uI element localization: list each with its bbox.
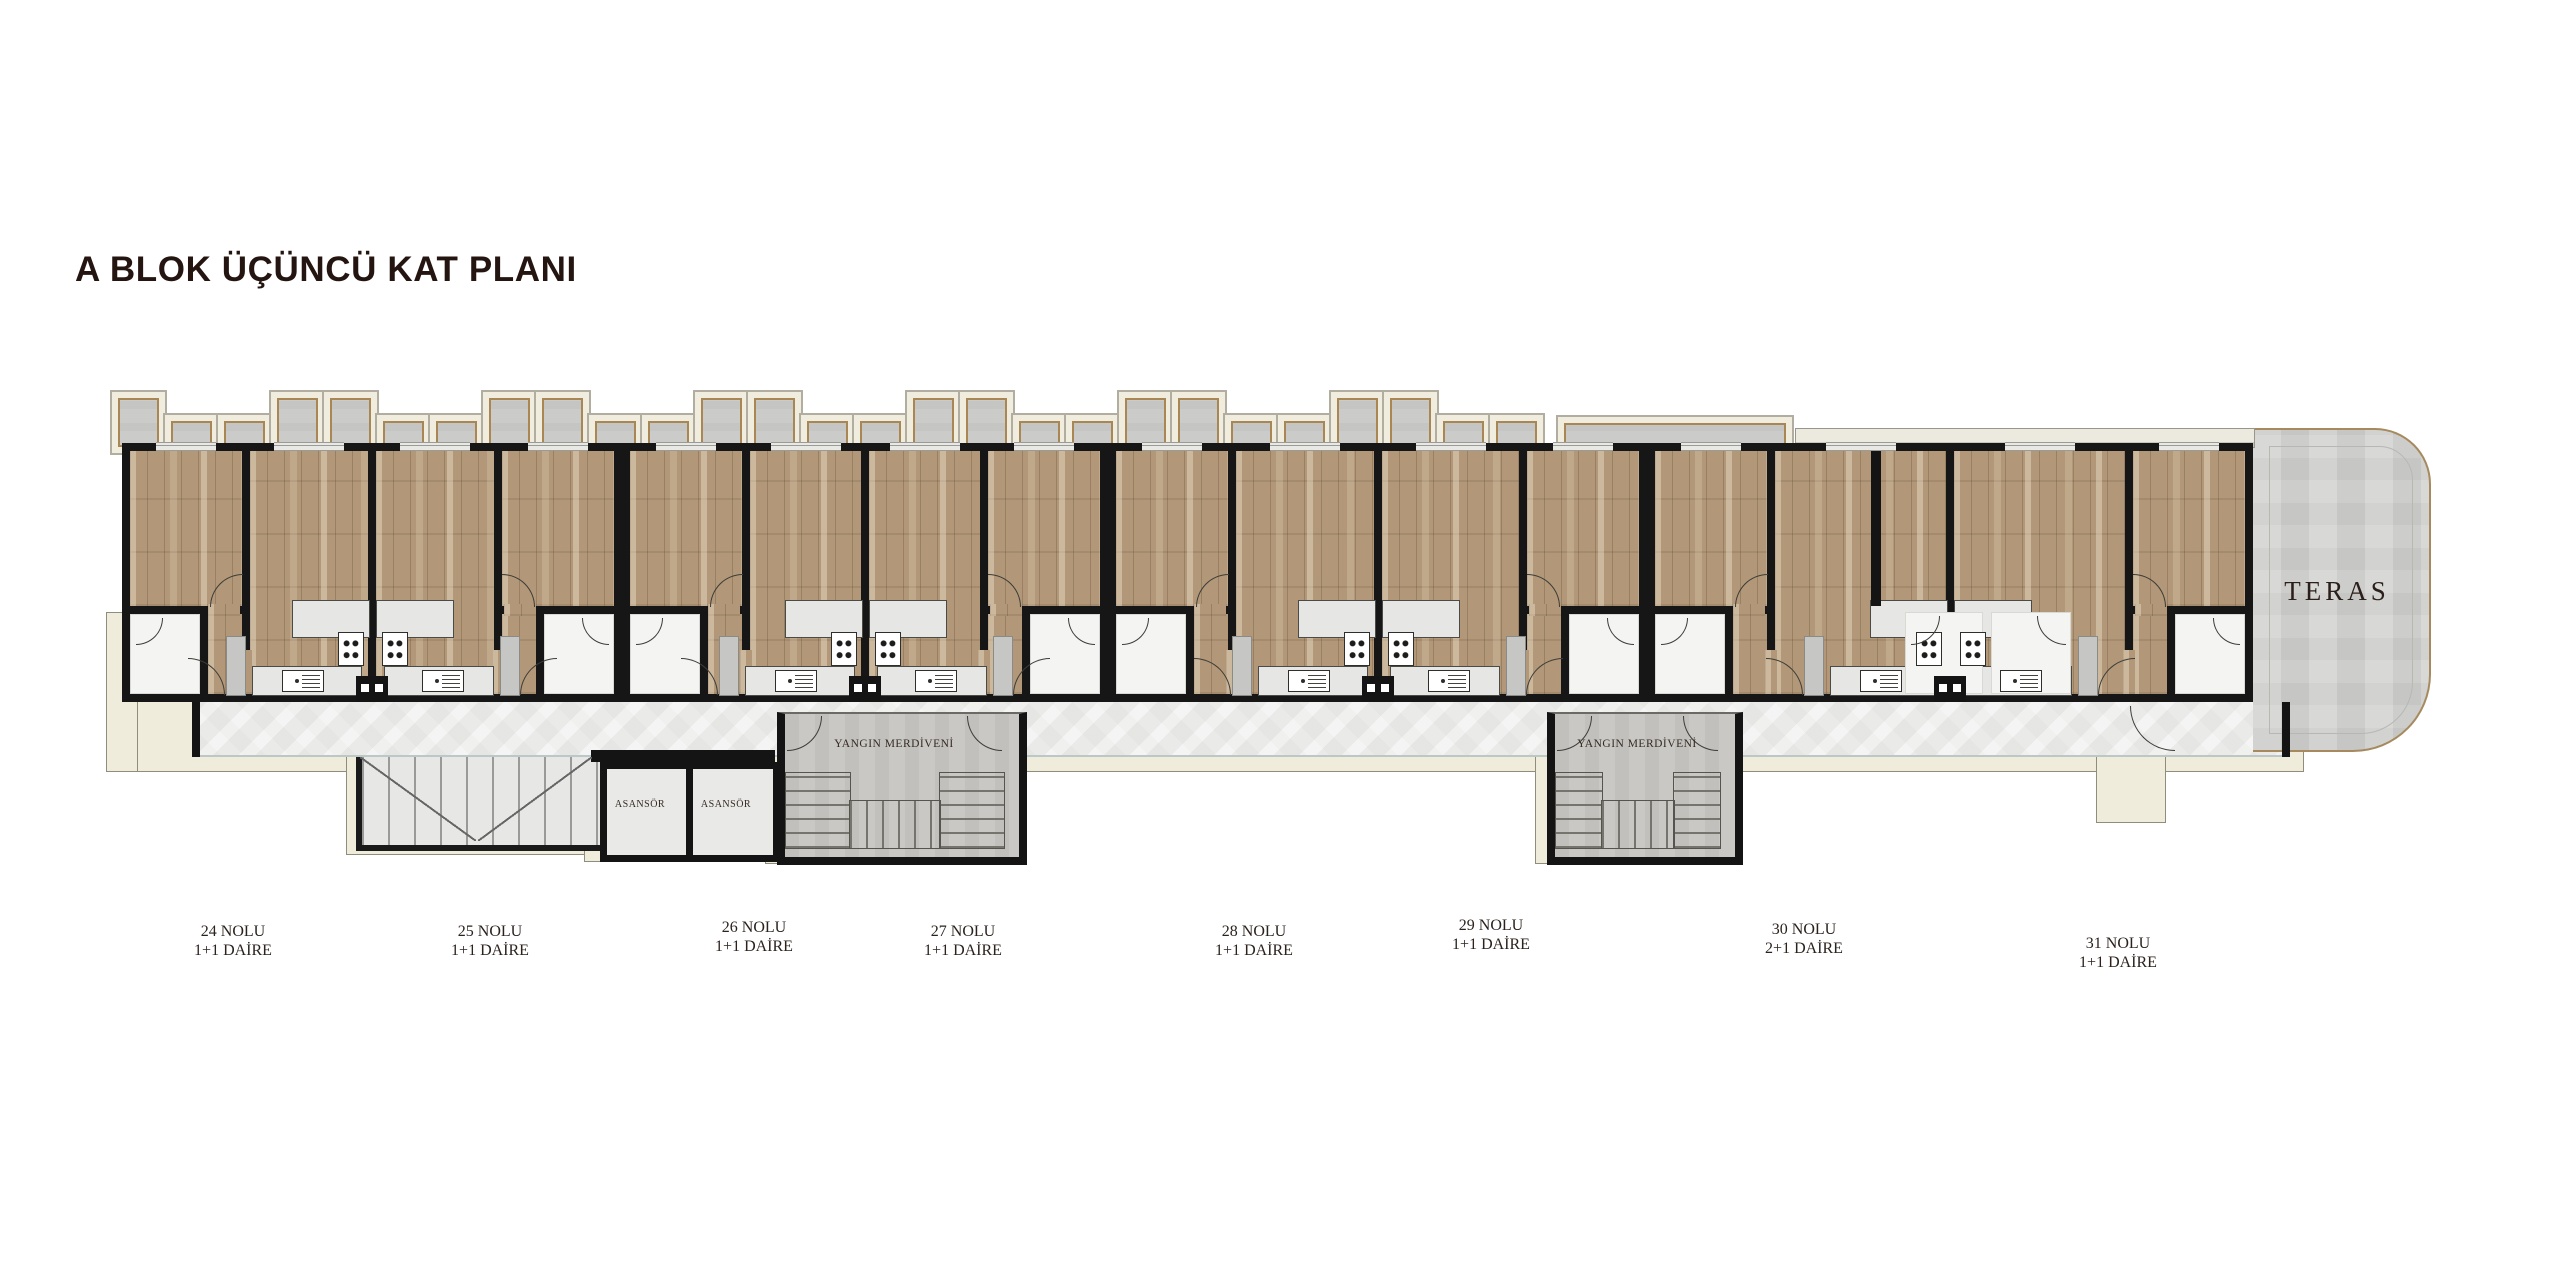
wardrobe (1506, 636, 1526, 696)
sink-icon (1288, 670, 1330, 692)
apartment-type: 1+1 DAİRE (2028, 953, 2208, 972)
apartment-number: 29 NOLU (1401, 916, 1581, 935)
apartment-label-31: 31 NOLU 1+1 DAİRE (2028, 934, 2208, 972)
apartment-number: 25 NOLU (400, 922, 580, 941)
apartment-type: 1+1 DAİRE (664, 937, 844, 956)
apartment-number: 31 NOLU (2028, 934, 2208, 953)
fire-stairs-2-label: YANGIN MERDİVENİ (1547, 738, 1727, 750)
window (771, 442, 841, 451)
window (1014, 442, 1074, 451)
apartment-label-29: 29 NOLU 1+1 DAİRE (1401, 916, 1581, 954)
sink-icon (282, 670, 324, 692)
elevator-1-label: ASANSÖR (598, 799, 682, 810)
stove-icon (831, 632, 857, 666)
apartment-number: 27 NOLU (873, 922, 1053, 941)
unit-hall (1733, 614, 1767, 694)
wall-niche (1939, 684, 1947, 692)
side-balcony (2096, 755, 2166, 823)
partition-wall (1871, 451, 1881, 606)
apartment-label-28: 28 NOLU 1+1 DAİRE (1164, 922, 1344, 960)
stair-treads (939, 772, 1005, 849)
corridor-end-wall (192, 702, 200, 757)
window (2005, 442, 2075, 451)
corridor-end-wall (2282, 702, 2290, 757)
sink-icon (915, 670, 957, 692)
window (274, 442, 344, 451)
apartment-type: 2+1 DAİRE (1714, 939, 1894, 958)
window (2159, 442, 2219, 451)
wall-niche (375, 684, 383, 692)
apartment-label-27: 27 NOLU 1+1 DAİRE (873, 922, 1053, 960)
stair-treads (1555, 772, 1603, 849)
apartment-type: 1+1 DAİRE (400, 941, 580, 960)
window (656, 442, 716, 451)
elevator-shaft (600, 762, 694, 862)
wall-niche (854, 684, 862, 692)
floor-plan: TERAS ASANSÖR ASANSÖR YANGIN MERDİVENİ Y… (0, 0, 2560, 1280)
sink-icon (2000, 670, 2042, 692)
wall-niche (1381, 684, 1389, 692)
window (400, 442, 470, 451)
elevator-2-label: ASANSÖR (684, 799, 768, 810)
elevator-top-wall (591, 750, 775, 762)
wall-niche (1953, 684, 1961, 692)
wall-niche (868, 684, 876, 692)
wall-niche (361, 684, 369, 692)
wardrobe (2078, 636, 2098, 696)
wardrobe (500, 636, 520, 696)
stair-treads (785, 772, 851, 849)
apartment-number: 24 NOLU (143, 922, 323, 941)
stove-icon (1344, 632, 1370, 666)
window (156, 442, 216, 451)
apartment-type: 1+1 DAİRE (1164, 941, 1344, 960)
apartment-number: 26 NOLU (664, 918, 844, 937)
stair-flight-line (478, 757, 592, 841)
window (1681, 442, 1741, 451)
fire-stairs-1-label: YANGIN MERDİVENİ (777, 738, 1011, 750)
wardrobe (719, 636, 739, 696)
apartment-number: 30 NOLU (1714, 920, 1894, 939)
window (1270, 442, 1340, 451)
sink-icon (1428, 670, 1470, 692)
stove-icon (382, 632, 408, 666)
elevator-shaft (686, 762, 780, 862)
stove-icon (338, 632, 364, 666)
window (1553, 442, 1613, 451)
wardrobe (1804, 636, 1824, 696)
wardrobe (226, 636, 246, 696)
floor-plan-page: A BLOK ÜÇÜNCÜ KAT PLANI TERAS ASANSÖR AS… (0, 0, 2560, 1280)
wardrobe (1232, 636, 1252, 696)
stair-treads (849, 800, 941, 849)
stove-icon (875, 632, 901, 666)
apartment-label-25: 25 NOLU 1+1 DAİRE (400, 922, 580, 960)
stove-icon (1388, 632, 1414, 666)
apartment-label-24: 24 NOLU 1+1 DAİRE (143, 922, 323, 960)
apartment-type: 1+1 DAİRE (873, 941, 1053, 960)
stove-icon (1960, 632, 1986, 666)
apartment-number: 28 NOLU (1164, 922, 1344, 941)
terrace-label: TERAS (2253, 576, 2421, 607)
window (1826, 442, 1896, 451)
unit-hall (2133, 614, 2167, 694)
window (890, 442, 960, 451)
window (528, 442, 588, 451)
stair-treads (1601, 800, 1675, 849)
apartment-label-26: 26 NOLU 1+1 DAİRE (664, 918, 844, 956)
apartment-label-30: 30 NOLU 2+1 DAİRE (1714, 920, 1894, 958)
sink-icon (422, 670, 464, 692)
apartment-type: 1+1 DAİRE (1401, 935, 1581, 954)
sink-icon (775, 670, 817, 692)
window (1416, 442, 1486, 451)
sink-icon (1860, 670, 1902, 692)
stair-treads (1673, 772, 1721, 849)
window (1142, 442, 1202, 451)
corridor (200, 702, 2290, 757)
wall-niche (1367, 684, 1375, 692)
stair-flight-line (360, 757, 476, 841)
wardrobe (993, 636, 1013, 696)
apartment-type: 1+1 DAİRE (143, 941, 323, 960)
